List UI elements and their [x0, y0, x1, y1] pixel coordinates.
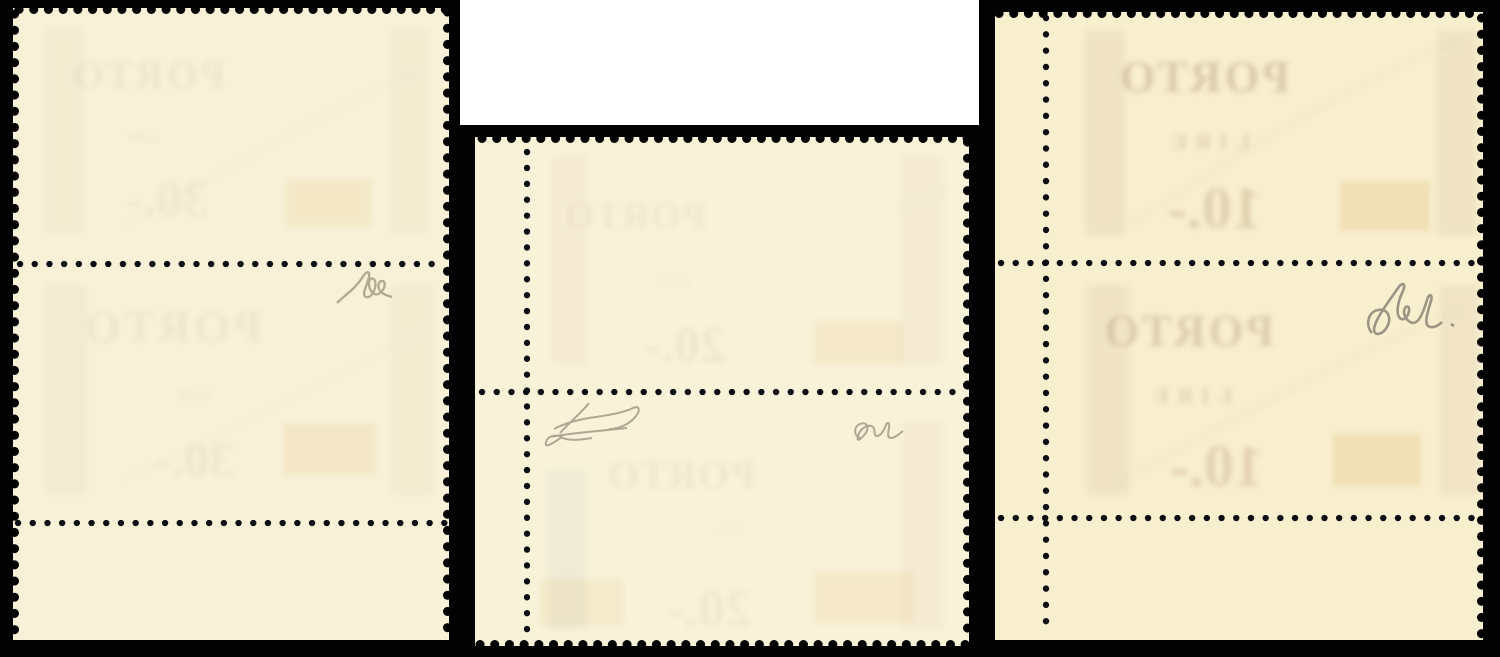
svg-text:PORTO: PORTO [1117, 52, 1290, 102]
svg-text:LIRE: LIRE [1146, 383, 1232, 408]
svg-text:Lire: Lire [127, 125, 161, 147]
svg-text:LIRE: LIRE [1164, 129, 1250, 154]
svg-text:Lire: Lire [709, 518, 743, 540]
svg-text:10.-: 10.- [1167, 175, 1262, 241]
svg-text:PORTO: PORTO [1101, 306, 1274, 356]
svg-text:PORTO: PORTO [606, 452, 756, 497]
svg-text:20.-: 20.- [667, 578, 752, 638]
svg-text:Lire: Lire [657, 269, 691, 291]
svg-text:PORTO: PORTO [70, 52, 225, 97]
svg-text:PORTO: PORTO [563, 195, 706, 237]
svg-text:Lire: Lire [177, 383, 211, 405]
svg-text:PORTO: PORTO [81, 301, 262, 352]
